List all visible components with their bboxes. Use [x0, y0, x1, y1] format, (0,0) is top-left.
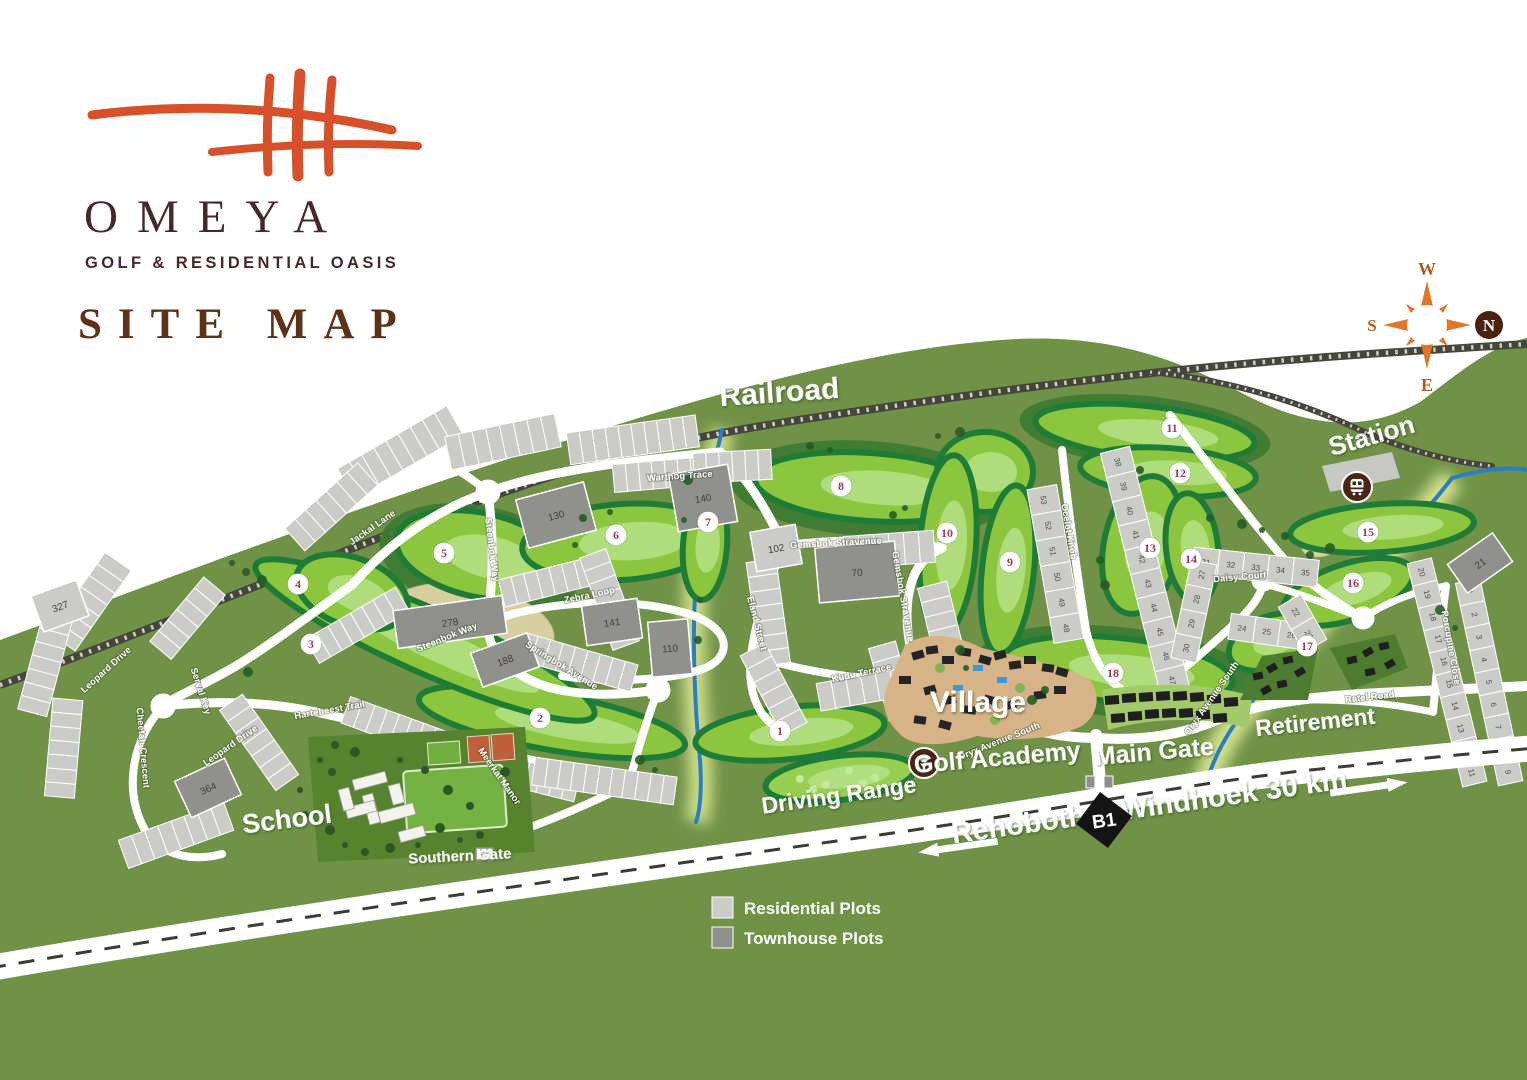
hole-number: 5 [441, 546, 447, 560]
logo-mark [92, 74, 418, 176]
hole-marker: 10 [937, 523, 958, 544]
bush [1100, 580, 1110, 590]
hole-marker: 8 [831, 476, 852, 497]
compass-west: W [1418, 259, 1436, 279]
bush [652, 767, 658, 773]
tree [385, 843, 395, 853]
hole-marker: 11 [1162, 418, 1183, 439]
townhouse-building [1179, 708, 1194, 718]
compass-south: S [1367, 316, 1376, 335]
map-label: Village [930, 686, 1026, 719]
hole-number: 9 [1007, 555, 1013, 569]
legend-residential-label: Residential Plots [744, 899, 881, 918]
townhouse-building [1156, 691, 1171, 701]
residential-plot [745, 450, 760, 481]
hole-marker: 6 [606, 525, 627, 546]
townhouse-building [1190, 692, 1205, 702]
tennis-court [491, 733, 515, 760]
tree [466, 802, 474, 810]
residential-plot [52, 698, 83, 715]
village-building [1024, 656, 1036, 664]
hole-number: 15 [1362, 525, 1374, 539]
bush [955, 645, 965, 655]
plot-number: 34 [1276, 565, 1286, 575]
bush [579, 514, 587, 522]
practice-court [427, 741, 460, 765]
village-building [1054, 686, 1066, 694]
townhouse-block: 70 [815, 541, 899, 603]
train-icon [1342, 472, 1372, 502]
legend-residential-swatch [712, 897, 733, 918]
site-map-canvas: 3839404142434445464753525150494831323334… [0, 0, 1527, 1080]
bush [607, 509, 613, 515]
hole-number: 17 [1301, 639, 1313, 653]
bush [935, 433, 941, 439]
b1-badge-label: B1 [1091, 809, 1118, 833]
hole-number: 18 [1107, 666, 1119, 680]
plot-number: 32 [1226, 560, 1236, 570]
bush [681, 517, 687, 523]
bush [1096, 556, 1104, 564]
tree [397, 757, 403, 763]
bush [902, 505, 908, 511]
legend-townhouse-swatch [712, 927, 733, 948]
roundabout [476, 480, 500, 504]
hole-number: 7 [705, 515, 711, 529]
bush [572, 542, 578, 548]
bush [243, 667, 253, 677]
hole-number: 14 [1185, 552, 1197, 566]
townhouse-building [1128, 711, 1143, 721]
bush [827, 447, 833, 453]
block-number: 70 [851, 567, 863, 579]
bush [955, 427, 965, 437]
hole-number: 16 [1347, 576, 1359, 590]
tree [443, 785, 453, 795]
hole-marker: 14 [1181, 549, 1202, 570]
hole-marker: 17 [1297, 636, 1318, 657]
residential-plot [758, 449, 773, 480]
bush [694, 636, 702, 644]
residential-plot [903, 531, 920, 564]
bush [229, 560, 235, 566]
hole-marker: 16 [1343, 573, 1364, 594]
bush [242, 568, 250, 576]
tree [328, 768, 336, 776]
village-green [935, 663, 945, 673]
bush [1206, 514, 1214, 522]
tree [415, 842, 421, 848]
tree [350, 747, 360, 757]
hole-number: 2 [537, 711, 543, 725]
hole-marker: 7 [698, 512, 719, 533]
omeya-site-map-page: 3839404142434445464753525150494831323334… [0, 0, 1527, 1080]
hole-marker: 5 [434, 543, 455, 564]
hole-marker: 2 [530, 708, 551, 729]
village-building [1042, 663, 1055, 673]
compass-east: E [1421, 375, 1433, 395]
tree [342, 842, 348, 848]
hole-number: 11 [1166, 421, 1177, 435]
pool [997, 677, 1007, 683]
hole-number: 10 [941, 526, 953, 540]
tree [297, 787, 303, 793]
plot-number: 24 [1237, 623, 1248, 633]
townhouse-building [1122, 693, 1137, 703]
residential-plot [732, 451, 747, 482]
compass-north: N [1483, 316, 1496, 335]
tree [317, 757, 323, 763]
village-building [926, 645, 939, 655]
tree [457, 837, 463, 843]
bush [889, 511, 897, 519]
hole-number: 6 [613, 528, 619, 542]
hole-marker: 4 [288, 574, 309, 595]
townhouse-building [1162, 708, 1177, 718]
bush [1237, 519, 1247, 529]
hole-marker: 3 [301, 634, 322, 655]
village-building [899, 676, 911, 684]
townhouse-building [1213, 713, 1228, 723]
page-title: SITE MAP [78, 301, 413, 348]
tree [361, 848, 369, 856]
bush [1041, 686, 1049, 694]
logo-brand: OMEYA [84, 191, 346, 243]
plot-number: 35 [1301, 568, 1311, 578]
townhouse-building [1105, 695, 1120, 705]
block-number: 110 [662, 643, 679, 655]
hole-marker: 13 [1140, 538, 1161, 559]
hole-marker: 1 [770, 721, 791, 742]
bush [635, 755, 645, 765]
hole-marker: 12 [1170, 463, 1191, 484]
townhouse-building [1111, 713, 1126, 723]
townhouse-block: 110 [648, 619, 693, 677]
bush [806, 442, 814, 450]
townhouse-building [1145, 709, 1160, 719]
bush [257, 575, 267, 585]
hole-number: 3 [308, 637, 314, 651]
hole-number: 4 [295, 577, 301, 591]
hole-number: 13 [1144, 541, 1156, 555]
townhouse-building [1139, 692, 1154, 702]
hole-marker: 15 [1358, 522, 1379, 543]
roundabout [151, 694, 175, 718]
plot-number: 25 [1262, 627, 1273, 637]
tree [476, 831, 484, 839]
townhouse-building [1173, 691, 1188, 701]
pool [973, 665, 983, 671]
roundabout [646, 678, 670, 702]
residential-plot [918, 530, 935, 563]
tree [435, 823, 445, 833]
tree [331, 741, 339, 749]
bush [1136, 466, 1144, 474]
bush [963, 665, 969, 671]
hole-marker: 18 [1103, 663, 1124, 684]
logo: OMEYA GOLF & RESIDENTIAL OASIS SITE MAP [78, 74, 418, 348]
bush [1325, 543, 1335, 553]
hole-number: 12 [1174, 466, 1186, 480]
legend-townhouse-label: Townhouse Plots [744, 929, 883, 948]
roundabout [1352, 607, 1374, 629]
bush [1281, 532, 1289, 540]
townhouse-building [1224, 697, 1239, 707]
logo-tagline: GOLF & RESIDENTIAL OASIS [85, 254, 399, 272]
townhouse-block: 141 [581, 598, 642, 645]
village-building [1009, 660, 1022, 670]
hole-marker: 9 [1000, 552, 1021, 573]
bush [697, 597, 703, 603]
bush [1306, 551, 1314, 559]
tree [421, 766, 429, 774]
bush [1027, 695, 1037, 705]
hole-number: 1 [777, 724, 783, 738]
village-building [942, 656, 954, 664]
hole-number: 8 [838, 479, 844, 493]
village-building [914, 715, 927, 725]
bush [1259, 527, 1265, 533]
school-compound [297, 727, 535, 862]
